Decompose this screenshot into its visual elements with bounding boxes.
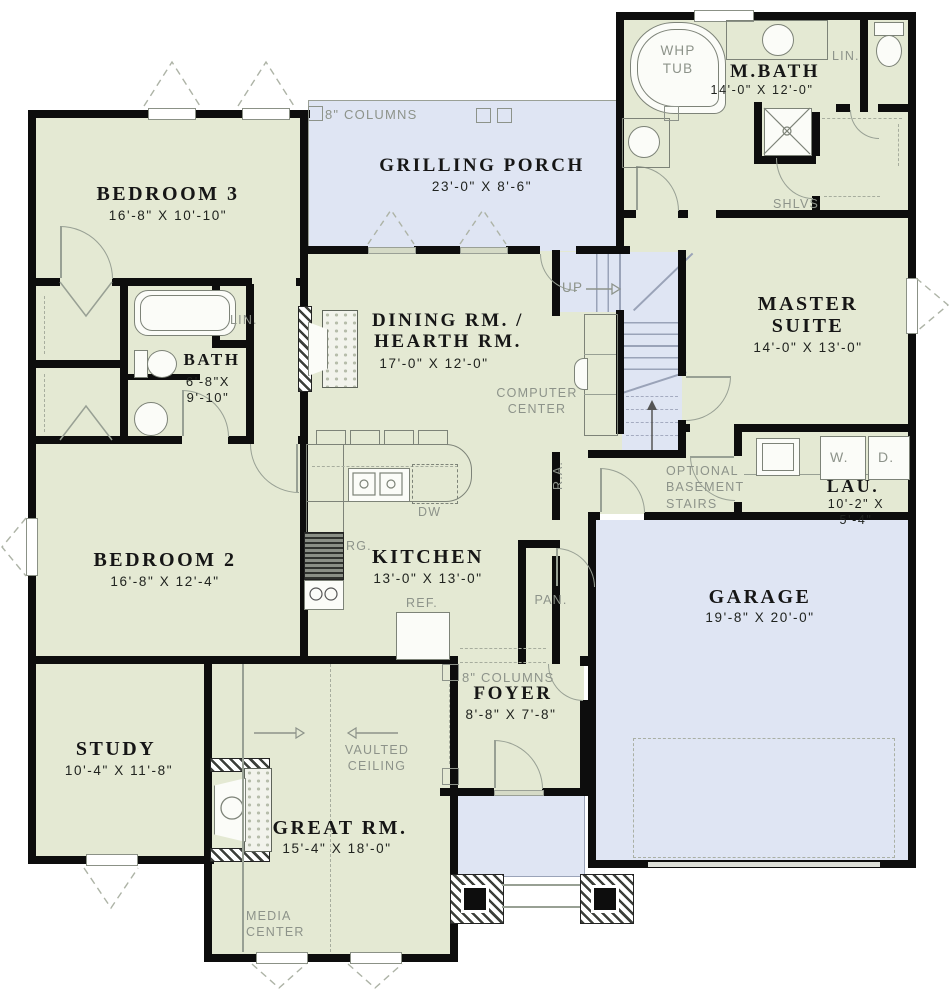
room-name-garage: GARAGE bbox=[709, 586, 812, 608]
room-dims-bedroom3: 16'-8" X 10'-10" bbox=[109, 208, 227, 225]
bar-stool bbox=[418, 430, 448, 445]
linen-note-mbath: LIN. bbox=[832, 48, 860, 64]
room-dims-study: 10'-4" X 11'-8" bbox=[65, 763, 173, 780]
wall bbox=[28, 656, 212, 664]
room-name-porch: GRILLING PORCH bbox=[379, 155, 585, 176]
column bbox=[497, 108, 512, 123]
basement-stairs-arrow bbox=[645, 400, 659, 452]
shelves-note: SHLVS bbox=[773, 196, 819, 212]
foyer-columns-note: 8" COLUMNS bbox=[462, 670, 554, 687]
stairs-dashed-tread bbox=[626, 396, 678, 397]
desk-divider bbox=[584, 354, 616, 355]
refrigerator-note: REF. bbox=[406, 595, 438, 611]
column bbox=[664, 106, 679, 121]
wall bbox=[518, 540, 526, 664]
column bbox=[442, 768, 459, 785]
wall bbox=[204, 954, 458, 962]
fireplace-stone bbox=[244, 768, 272, 852]
room-dims-dining: 17'-0" X 12'-0" bbox=[379, 356, 488, 373]
computer-desk bbox=[584, 314, 618, 436]
vault-arrow bbox=[254, 727, 306, 739]
toilet-tank bbox=[874, 22, 904, 36]
vanity-sink bbox=[762, 24, 794, 56]
wall bbox=[518, 540, 560, 548]
room-dims-great: 15'-4" X 18'-0" bbox=[282, 841, 391, 858]
wall bbox=[812, 112, 820, 156]
wall bbox=[246, 284, 254, 444]
room-name-bedroom3: BEDROOM 3 bbox=[96, 183, 239, 205]
media-center-wall bbox=[242, 664, 244, 952]
cooktop-burners bbox=[304, 580, 342, 608]
toilet-bowl bbox=[147, 350, 177, 378]
washer-note: W. bbox=[830, 448, 849, 466]
room-dims-bath: 6'-8"X 9'-10" bbox=[186, 374, 230, 407]
window-swing bbox=[82, 866, 140, 912]
refrigerator bbox=[396, 612, 450, 660]
porch-column-core bbox=[594, 888, 616, 910]
desk-divider bbox=[584, 394, 616, 395]
room-name-kitchen: KITCHEN bbox=[372, 546, 484, 568]
room-name-mbath: M.BATH bbox=[730, 61, 820, 82]
bar-stool bbox=[316, 430, 346, 445]
column-line bbox=[449, 684, 450, 764]
window-swing bbox=[142, 58, 202, 108]
room-name-great: GREAT RM. bbox=[272, 817, 407, 839]
door-leaf bbox=[686, 376, 730, 378]
window bbox=[350, 952, 402, 964]
wall bbox=[754, 102, 762, 162]
garage-door bbox=[633, 738, 895, 858]
wall bbox=[28, 110, 36, 864]
porch-door-swing bbox=[458, 206, 508, 246]
room-name-master: MASTER SUITE bbox=[758, 293, 859, 338]
bathtub-inner bbox=[140, 295, 230, 331]
range-note: RG. bbox=[346, 538, 372, 554]
wall bbox=[120, 284, 128, 444]
column bbox=[476, 108, 491, 123]
room-dims-bedroom2: 16'-8" X 12'-4" bbox=[110, 574, 219, 591]
toilet-tank bbox=[134, 350, 148, 378]
column bbox=[308, 106, 323, 121]
dishwasher-note: DW bbox=[418, 504, 441, 520]
wall bbox=[678, 210, 688, 218]
window bbox=[86, 854, 138, 866]
room-name-dining: DINING RM. / HEARTH RM. bbox=[372, 310, 524, 353]
room-name-bath: BATH bbox=[184, 350, 241, 369]
media-center-note: MEDIA CENTER bbox=[246, 908, 305, 941]
kitchen-sink-basins bbox=[348, 468, 408, 500]
porch-door-swing bbox=[366, 206, 416, 246]
room-dims-kitchen: 13'-0" X 13'-0" bbox=[373, 571, 482, 588]
closet-bifold-door bbox=[56, 282, 116, 322]
wall bbox=[616, 210, 636, 218]
stairs-shaft-treads bbox=[624, 312, 680, 372]
foyer-opening-dash bbox=[460, 648, 546, 649]
wall bbox=[836, 104, 850, 112]
room-dims-master: 14'-0" X 13'-0" bbox=[753, 340, 862, 357]
pantry-note: PAN. bbox=[534, 592, 567, 608]
door-leaf bbox=[636, 166, 638, 210]
door-leaf bbox=[60, 226, 62, 278]
closet-rod bbox=[44, 296, 45, 354]
optional-basement-stairs-note: OPTIONAL BASEMENT STAIRS bbox=[666, 463, 744, 512]
room-dims-foyer: 8'-8" X 7'-8" bbox=[465, 707, 556, 724]
vault-arrow bbox=[346, 727, 398, 739]
door-leaf bbox=[556, 548, 558, 586]
laundry-sink-basin bbox=[762, 443, 794, 471]
closet-rod bbox=[44, 374, 45, 432]
return-air-note: R.A. bbox=[550, 461, 566, 490]
wall bbox=[506, 246, 540, 254]
door-leaf bbox=[494, 740, 496, 788]
porch-door-sill bbox=[460, 247, 508, 254]
wall bbox=[440, 788, 494, 796]
room-dims-laundry: 10'-2" X 5'-4" bbox=[809, 497, 903, 528]
window bbox=[256, 952, 308, 964]
wall bbox=[212, 340, 254, 348]
vanity-sink-2 bbox=[628, 126, 660, 158]
wall bbox=[204, 656, 212, 962]
door-leaf bbox=[182, 390, 184, 436]
wall bbox=[300, 246, 368, 254]
vaulted-ceiling-note: VAULTED CEILING bbox=[345, 742, 409, 775]
bar-stool bbox=[384, 430, 414, 445]
linen-note-bath: LIN. bbox=[230, 312, 258, 328]
wall bbox=[878, 104, 916, 112]
window-swing bbox=[916, 276, 950, 336]
wall bbox=[734, 424, 916, 432]
wall bbox=[734, 432, 742, 456]
whp-tub-note: WHP TUB bbox=[660, 42, 695, 77]
garage-door-opening bbox=[648, 862, 880, 867]
front-door-sill bbox=[494, 790, 544, 796]
door-leaf bbox=[600, 468, 602, 512]
room-dims-mbath: 14'-0" X 12'-0" bbox=[711, 83, 814, 99]
window-swing bbox=[250, 964, 308, 990]
closet-shelf bbox=[822, 118, 902, 119]
wall bbox=[588, 450, 684, 458]
room-dims-porch: 23'-0" X 8'-6" bbox=[432, 179, 532, 196]
up-arrow bbox=[586, 283, 622, 295]
porch-column-core bbox=[464, 888, 486, 910]
closet-shelf bbox=[824, 196, 880, 197]
foyer-opening-dash bbox=[460, 662, 546, 663]
room-study bbox=[32, 664, 208, 858]
wall bbox=[298, 436, 308, 444]
window-swing bbox=[236, 58, 296, 108]
column bbox=[442, 664, 459, 681]
wall bbox=[580, 700, 588, 796]
dishwasher bbox=[412, 464, 458, 504]
wall bbox=[588, 512, 596, 868]
window bbox=[148, 108, 196, 120]
wall bbox=[112, 278, 252, 286]
window bbox=[242, 108, 290, 120]
porch-step bbox=[502, 906, 580, 908]
room-name-study: STUDY bbox=[76, 738, 156, 760]
front-porch-fill bbox=[455, 794, 585, 877]
porch-door-sill bbox=[368, 247, 416, 254]
wall bbox=[860, 12, 868, 112]
wall bbox=[678, 250, 686, 376]
dryer-note: D. bbox=[878, 448, 894, 466]
wall bbox=[296, 278, 308, 286]
floor-plan: BEDROOM 3 16'-8" X 10'-10" GRILLING PORC… bbox=[0, 0, 950, 991]
door-leaf bbox=[296, 444, 298, 492]
toilet-bowl bbox=[876, 35, 902, 67]
shower-glass bbox=[764, 108, 810, 154]
pedestal-sink bbox=[134, 402, 168, 436]
vaulted-ceiling-line bbox=[330, 664, 331, 952]
up-note: UP bbox=[562, 279, 583, 297]
room-name-laundry: LAU. bbox=[827, 476, 880, 496]
room-dims-garage: 19'-8" X 20'-0" bbox=[705, 610, 814, 627]
porch-step bbox=[502, 884, 580, 886]
firebox bbox=[308, 322, 328, 376]
wall bbox=[28, 360, 128, 368]
window-swing bbox=[346, 964, 404, 990]
wall bbox=[616, 12, 916, 20]
computer-center-note: COMPUTER CENTER bbox=[496, 385, 577, 418]
bar-stool bbox=[350, 430, 380, 445]
porch-columns-note: 8" COLUMNS bbox=[325, 107, 417, 124]
door-leaf bbox=[690, 456, 734, 458]
range bbox=[304, 532, 344, 580]
wall bbox=[542, 788, 590, 796]
wall bbox=[414, 246, 460, 254]
window-swing bbox=[0, 516, 28, 578]
closet-bifold-door bbox=[56, 404, 116, 442]
closet-shelf bbox=[898, 124, 899, 166]
room-name-bedroom2: BEDROOM 2 bbox=[93, 549, 236, 571]
wall bbox=[678, 424, 690, 432]
